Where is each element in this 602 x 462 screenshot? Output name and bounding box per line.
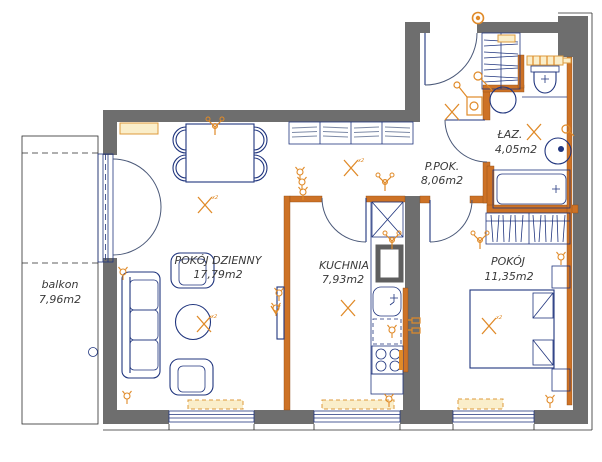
radiator-icon [322,400,394,409]
ceiling-lamp-icon [197,316,211,332]
chandelier-icon [376,173,394,191]
radiator-icon [188,400,243,409]
floor-plan-canvas: x2 x2 x2 x2 POKÓJ DZIENNY 17,79m [0,0,602,462]
knob-strip-icon [399,350,403,370]
balcony-door [98,154,161,262]
hall-wardrobe [289,122,413,144]
bedroom-wardrobe [486,213,570,244]
living-room-window [169,400,254,424]
dishwasher-icon [373,319,401,344]
cooktop-icon [372,346,403,374]
room-area-bath: 4,05m2 [495,143,537,156]
room-label-kitchen: KUCHNIA [319,259,369,272]
floor-plan: x2 x2 x2 x2 POKÓJ DZIENNY 17,79m [0,0,602,462]
lamp-label: x2 [495,315,502,321]
bed [470,290,554,368]
washbasin-icon [474,72,516,113]
room-label-bath: ŁAZ. [497,128,523,141]
lamp-label: x2 [357,158,364,164]
socket-icon [388,325,397,338]
kitchen-window [314,400,400,424]
sofa [122,272,160,378]
entry-wardrobe [482,33,520,89]
bedroom-door [430,200,472,242]
entrance-lamp-icon [473,13,484,24]
chair-icon [173,127,186,153]
shelf-icon [498,35,515,42]
towel-radiator-icon [527,56,571,65]
entrance-door [425,33,477,85]
bedroom-furniture [470,266,570,391]
cabinet [371,374,403,394]
bedroom-window [453,399,534,424]
socket-icon [123,391,132,404]
toilet-icon [531,66,559,93]
doors [322,33,487,242]
room-area-living: 17,79m2 [193,268,242,281]
chair-icon [173,155,186,181]
socket-icon [546,395,555,408]
room-label-balcony: balkon [42,278,79,291]
room-label-living: POKÓJ DZIENNY [175,254,263,267]
room-area-bedroom: 11,35m2 [484,270,533,283]
chair-icon [254,127,267,153]
radiator-icon [120,123,158,134]
tv-icon [277,287,284,339]
drainpipe-icon [89,348,98,357]
room-area-kitchen: 7,93m2 [322,273,364,286]
ceiling-lamp-icon [198,197,212,213]
room-label-hall: P.POK. [425,160,460,173]
bathroom-door [445,120,487,162]
ceiling-lamp-icon [341,300,355,316]
bathtub-icon [493,170,570,208]
room-label-bedroom: POKÓJ [491,255,525,268]
room-area-hall: 8,06m2 [421,174,463,187]
kitchen-door [322,198,366,242]
wall-fixture-icon [454,82,482,115]
lamp-label: x2 [210,314,217,320]
chair-icon [254,155,267,181]
dining-table [173,124,267,182]
oven-icon [378,247,401,280]
ceiling-lamp-icon [344,160,358,176]
armchair [170,359,213,395]
socket-icon [557,252,566,265]
sink-icon [373,287,401,316]
socket-icon [296,167,305,180]
ceiling-lamp-icon [527,124,541,140]
room-area-balcony: 7,96m2 [39,293,81,306]
lamp-label: x2 [211,195,218,201]
radiator-icon [458,399,503,409]
ceiling-lamp-icon [445,104,459,120]
fridge-icon [372,202,403,237]
